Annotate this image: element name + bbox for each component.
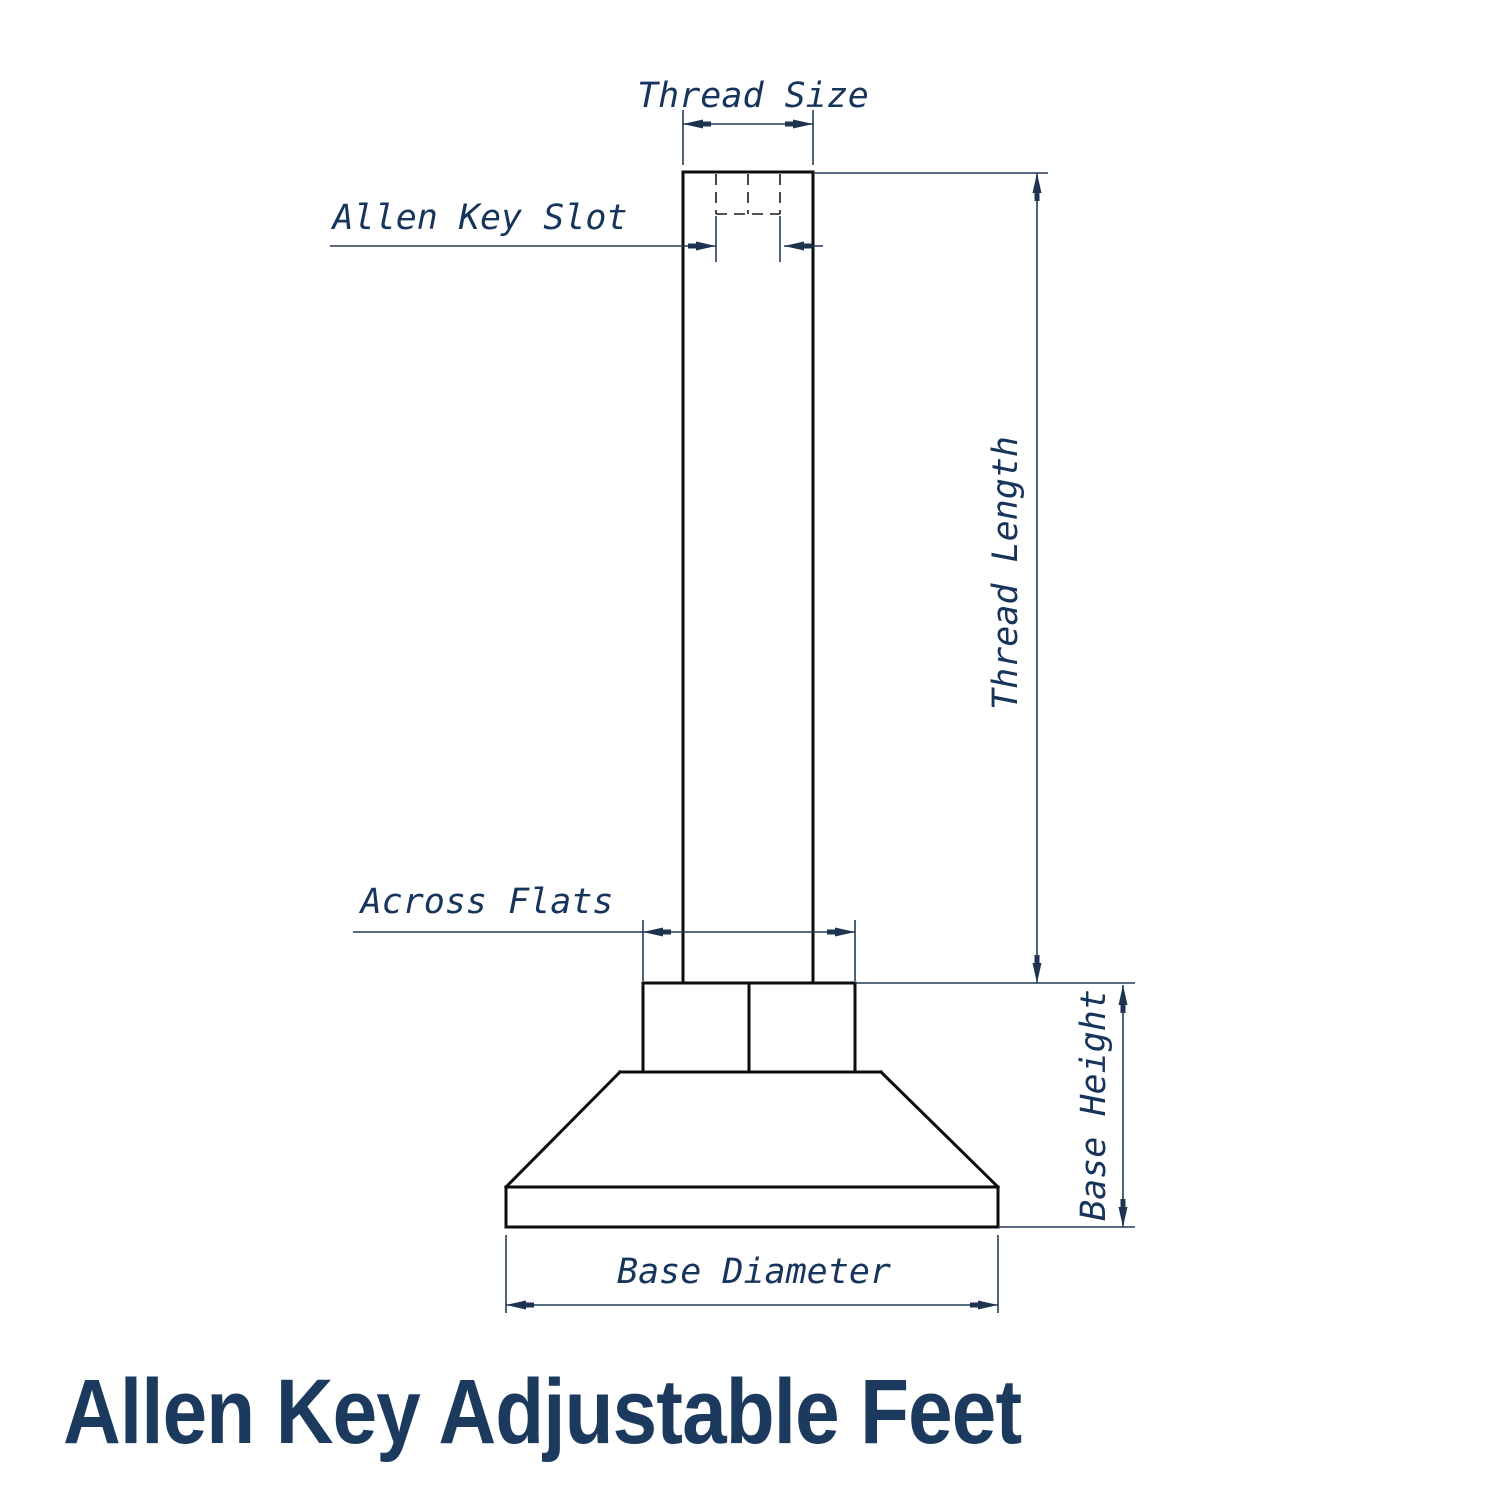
thread-size-arrow-left-stub bbox=[703, 122, 711, 127]
thread-length-arrow-top bbox=[1033, 173, 1042, 193]
across-flats-arrow-left bbox=[643, 928, 663, 937]
cone-left-slant bbox=[506, 1072, 620, 1187]
slot-arrow-right-stub bbox=[804, 244, 812, 249]
hex-nut bbox=[643, 983, 855, 1072]
base-height-arrow-bottom-stub bbox=[1121, 1199, 1126, 1207]
base-plate bbox=[506, 1187, 998, 1227]
base-diameter-arrow-left bbox=[506, 1301, 526, 1310]
slot-arrow-right bbox=[784, 242, 804, 251]
across-flats-arrow-right-stub bbox=[827, 930, 835, 935]
base-height-arrow-top bbox=[1119, 985, 1128, 1005]
dim-allen-key-slot: Allen Key Slot bbox=[330, 198, 823, 262]
drawing-canvas: Thread Size Allen Key Slot Thread Length bbox=[0, 0, 1500, 1500]
across-flats-arrow-right bbox=[835, 928, 855, 937]
dim-base-diameter: Base Diameter bbox=[506, 1235, 998, 1313]
thread-size-arrow-left bbox=[683, 120, 703, 129]
threaded-rod bbox=[683, 172, 813, 983]
thread-length-arrow-bottom-stub bbox=[1035, 955, 1040, 963]
slot-arrow-left bbox=[696, 242, 716, 251]
dim-across-flats: Across Flats bbox=[353, 882, 855, 981]
thread-length-arrow-bottom bbox=[1033, 963, 1042, 983]
across-flats-label: Across Flats bbox=[359, 882, 614, 922]
base-height-arrow-bottom bbox=[1119, 1207, 1128, 1227]
base-height-label: Base Height bbox=[1074, 989, 1114, 1221]
cone-right-slant bbox=[881, 1072, 998, 1187]
base-diameter-arrow-right-stub bbox=[970, 1303, 978, 1308]
dim-base-height: Base Height bbox=[998, 985, 1135, 1227]
thread-size-arrow-right bbox=[793, 120, 813, 129]
base-diameter-arrow-left-stub bbox=[526, 1303, 534, 1308]
base-cone bbox=[506, 1072, 998, 1187]
thread-length-label: Thread Length bbox=[986, 436, 1026, 710]
base-diameter-arrow-right bbox=[978, 1301, 998, 1310]
allen-key-slot-label: Allen Key Slot bbox=[330, 198, 627, 238]
dim-thread-size: Thread Size bbox=[637, 76, 869, 165]
base-height-arrow-top-stub bbox=[1121, 1005, 1126, 1013]
page-title: Allen Key Adjustable Feet bbox=[63, 1366, 1021, 1458]
base-diameter-label: Base Diameter bbox=[617, 1252, 891, 1292]
thread-size-arrow-right-stub bbox=[785, 122, 793, 127]
across-flats-arrow-left-stub bbox=[663, 930, 671, 935]
adjustable-foot-technical-drawing: Thread Size Allen Key Slot Thread Length bbox=[0, 0, 1500, 1500]
dim-thread-length: Thread Length bbox=[813, 173, 1135, 983]
thread-size-label: Thread Size bbox=[637, 76, 869, 116]
thread-length-arrow-top-stub bbox=[1035, 193, 1040, 201]
slot-arrow-left-stub bbox=[688, 244, 696, 249]
allen-key-slot-hidden-lines bbox=[716, 174, 780, 214]
